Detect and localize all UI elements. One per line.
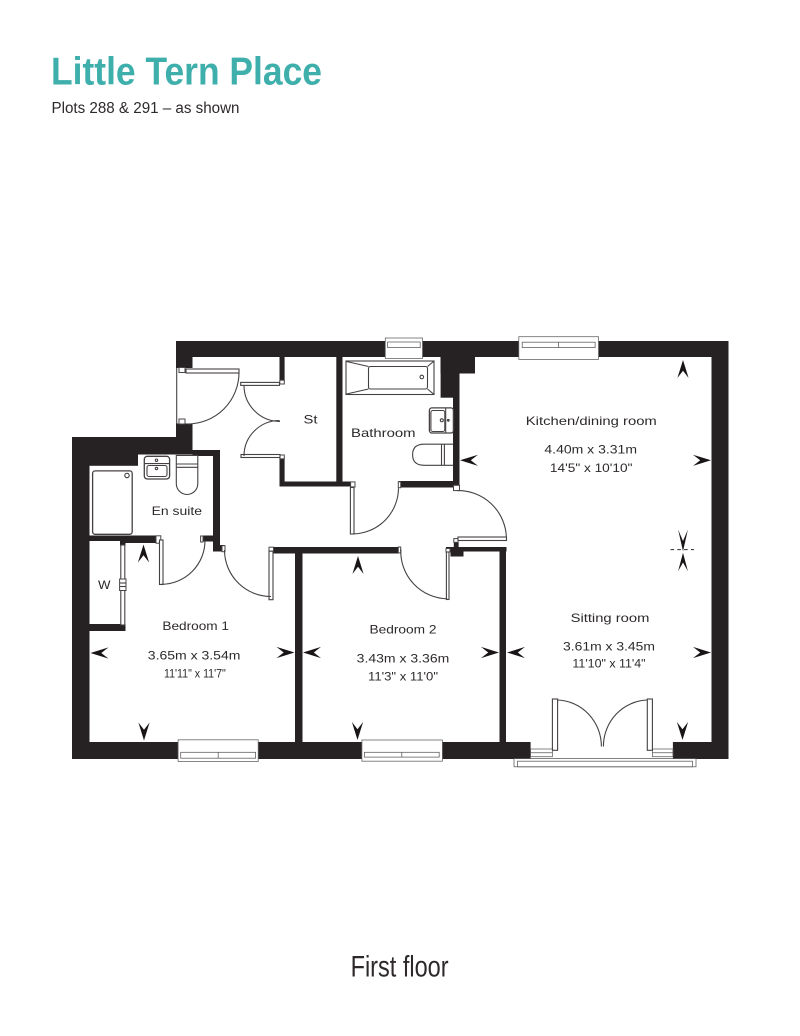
svg-text:11'10" x 11'4": 11'10" x 11'4" [572, 658, 645, 671]
svg-text:Bedroom 2: Bedroom 2 [370, 624, 437, 637]
svg-text:3.43m x 3.36m: 3.43m x 3.36m [357, 653, 450, 666]
svg-text:Plots 288 & 291 – as shown: Plots 288 & 291 – as shown [52, 100, 240, 117]
svg-text:W: W [98, 579, 111, 592]
svg-text:First floor: First floor [351, 951, 449, 984]
svg-text:St: St [304, 414, 319, 427]
svg-text:Bedroom 1: Bedroom 1 [162, 620, 229, 633]
svg-text:Kitchen/dining room: Kitchen/dining room [526, 415, 657, 428]
svg-text:11'11" x 11'7": 11'11" x 11'7" [164, 668, 226, 681]
svg-text:4.40m x 3.31m: 4.40m x 3.31m [544, 444, 637, 457]
svg-text:3.61m x 3.45m: 3.61m x 3.45m [563, 641, 655, 654]
svg-text:11'3" x 11'0": 11'3" x 11'0" [368, 671, 438, 684]
svg-text:Bathroom: Bathroom [351, 427, 416, 440]
svg-text:Little Tern Place: Little Tern Place [51, 51, 322, 94]
svg-text:3.65m x 3.54m: 3.65m x 3.54m [148, 650, 241, 663]
svg-text:14'5" x 10'10": 14'5" x 10'10" [550, 462, 633, 475]
svg-text:En suite: En suite [152, 505, 202, 518]
svg-text:Sitting room: Sitting room [571, 612, 650, 625]
